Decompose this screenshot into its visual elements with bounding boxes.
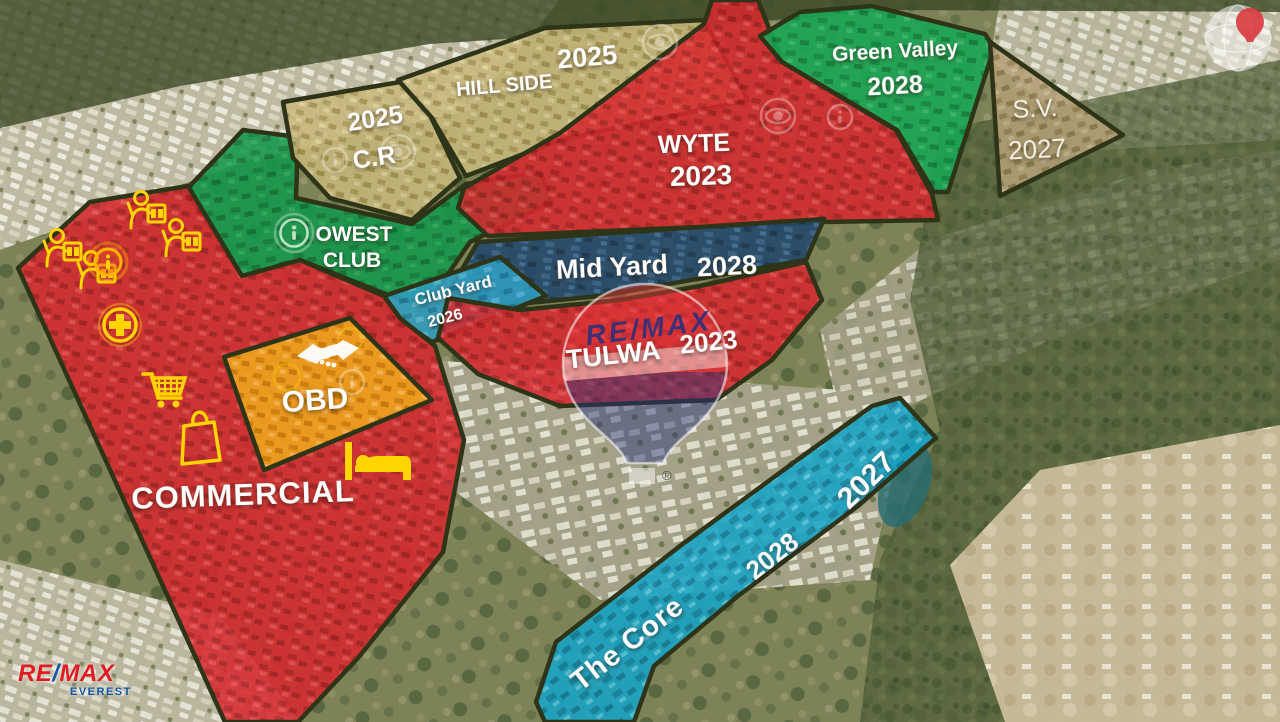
- remax-globe-watermark: [1205, 5, 1271, 71]
- owest-club-line1: OWEST: [316, 223, 393, 246]
- green-valley-year: 2028: [867, 71, 924, 102]
- registered-mark: ®: [662, 468, 672, 483]
- everest-subtitle: EVEREST: [70, 686, 132, 698]
- sv-name: S.V.: [1012, 94, 1058, 124]
- info-icon: [89, 243, 127, 281]
- medical-cross-icon: [99, 304, 141, 346]
- mid-yard-name: Mid Yard: [555, 249, 668, 285]
- remax-wordmark: RE/MAX: [18, 660, 116, 687]
- obd-name: OBD: [281, 382, 350, 420]
- tulwa-year: 2023: [678, 324, 739, 360]
- remax-max: MAX: [60, 660, 116, 687]
- remax-re: RE: [18, 660, 53, 687]
- hill-side-year: 2025: [556, 39, 618, 74]
- balloon-basket: [629, 468, 655, 484]
- masterplan-map: 2025 HILL SIDE 2025 C.R Green Valley 202…: [0, 0, 1280, 722]
- masterplan-svg: 2025 HILL SIDE 2025 C.R Green Valley 202…: [0, 0, 1280, 722]
- info-icon: [275, 214, 313, 252]
- wyte-year: 2023: [669, 159, 732, 192]
- mid-yard-year: 2028: [696, 249, 758, 282]
- sv-year: 2027: [1007, 133, 1066, 166]
- owest-club-line2: CLUB: [323, 249, 381, 272]
- wyte-name: WYTE: [657, 129, 730, 160]
